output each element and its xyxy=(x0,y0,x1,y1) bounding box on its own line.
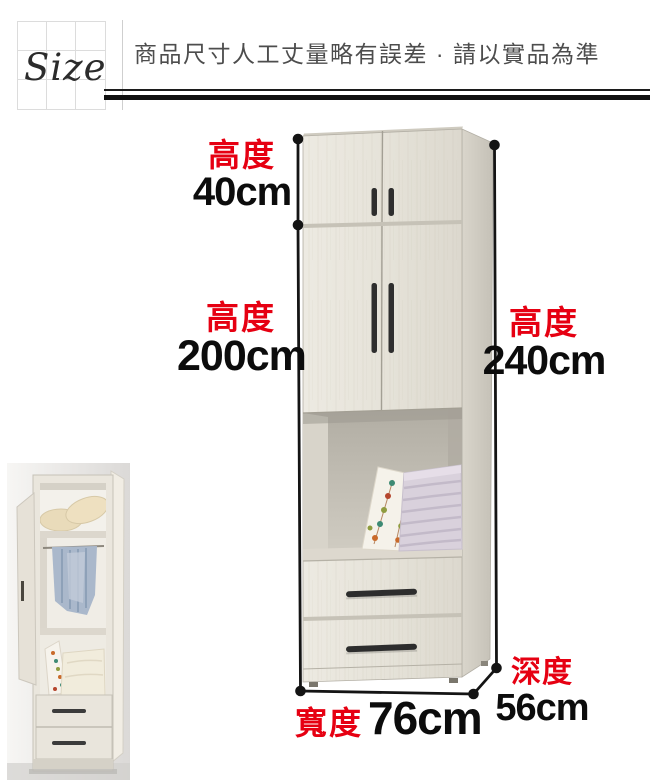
top-door-gap xyxy=(382,131,383,224)
white-pillow-small xyxy=(61,649,105,695)
hanging-compartment xyxy=(40,538,106,628)
wardrobe-side-panel xyxy=(462,129,493,677)
dimension-width: 寬度 76cm xyxy=(295,695,482,742)
dimension-label: 高度 xyxy=(177,301,305,335)
dimension-depth: 深度 56cm xyxy=(492,658,592,727)
dimension-value: 200cm xyxy=(177,335,305,379)
thumbnail-drawers xyxy=(36,695,112,759)
dimension-value: 56cm xyxy=(492,689,592,728)
dimension-label: 寬度 xyxy=(295,707,363,740)
dimension-value: 76cm xyxy=(368,695,482,742)
open-left-door xyxy=(17,493,36,685)
dimension-line-240cm xyxy=(495,145,497,668)
dimension-total-height: 高度 240cm xyxy=(478,306,610,381)
cabinet-foot xyxy=(309,682,318,687)
wardrobe-open-photo-thumbnail xyxy=(7,463,130,780)
dimension-cabinet-height: 高度 200cm xyxy=(177,301,305,379)
dimension-label: 深度 xyxy=(492,658,592,689)
wardrobe-illustration xyxy=(303,127,493,688)
main-door-gap xyxy=(382,226,383,411)
lower-compartment xyxy=(40,635,106,695)
dimension-value: 240cm xyxy=(478,340,610,382)
cabinet-foot xyxy=(481,661,488,666)
dimension-line-200cm xyxy=(298,225,301,691)
page-root: { "header": { "size_label": "Size", "not… xyxy=(0,0,650,780)
cabinet-foot xyxy=(449,678,458,683)
dimension-label: 高度 xyxy=(186,139,298,172)
top-compartment xyxy=(40,483,112,531)
dimension-label: 高度 xyxy=(478,306,610,340)
striped-pillow xyxy=(399,465,462,551)
dimension-value: 40cm xyxy=(186,172,298,213)
door-handle xyxy=(21,581,24,601)
dimension-top-height: 高度 40cm xyxy=(186,139,298,212)
